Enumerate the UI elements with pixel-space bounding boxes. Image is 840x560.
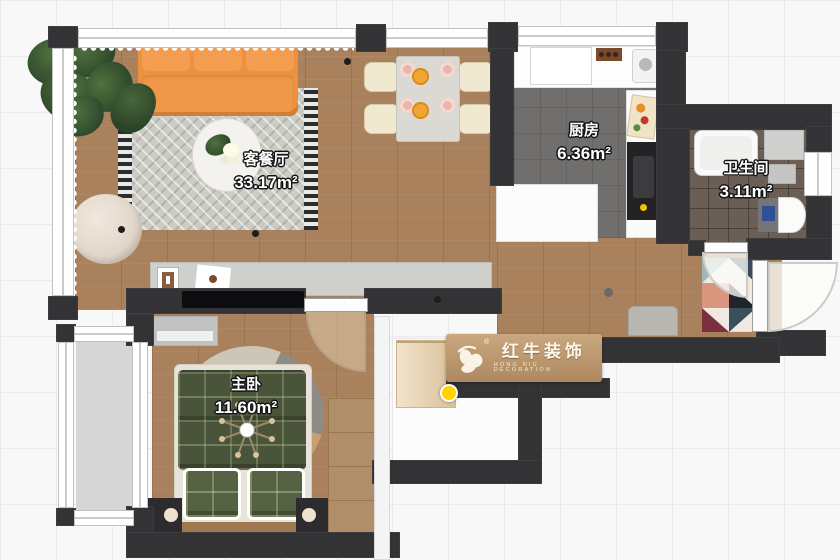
wall bbox=[364, 288, 502, 314]
wall bbox=[48, 26, 78, 48]
wall bbox=[490, 48, 514, 186]
room-label-kitchen: 厨房 6.36m² bbox=[557, 120, 611, 166]
wardrobe[interactable] bbox=[328, 398, 378, 536]
wall bbox=[746, 238, 832, 260]
window bbox=[804, 152, 832, 196]
watermark-logo: ® 红牛装饰 HONG NIU DECORATION bbox=[446, 334, 602, 382]
room-name: 主卧 bbox=[215, 374, 277, 396]
cooktop[interactable] bbox=[596, 48, 622, 61]
shoe-bench[interactable] bbox=[628, 306, 678, 336]
wall bbox=[356, 24, 386, 52]
balcony-window bbox=[58, 342, 74, 508]
entry-door[interactable] bbox=[752, 260, 768, 332]
dining-chair[interactable] bbox=[364, 62, 400, 92]
room-label-living: 客餐厅 33.17m² bbox=[234, 149, 297, 195]
curtain bbox=[74, 54, 80, 294]
room-area: 33.17m² bbox=[234, 171, 297, 196]
tv[interactable] bbox=[182, 291, 304, 308]
dining-set[interactable] bbox=[362, 54, 496, 142]
sofa-seat bbox=[142, 75, 294, 112]
spotlight-dot bbox=[118, 226, 125, 233]
partition bbox=[374, 316, 390, 560]
bedroom-door[interactable] bbox=[304, 298, 368, 312]
plate bbox=[440, 62, 455, 77]
cutting-board-decor bbox=[626, 94, 660, 139]
window bbox=[78, 28, 356, 48]
dining-chair[interactable] bbox=[458, 62, 494, 92]
kitchen-island-cabinet[interactable] bbox=[496, 184, 598, 242]
room-area: 3.11m² bbox=[720, 180, 773, 205]
fridge[interactable] bbox=[530, 47, 592, 85]
wall bbox=[656, 128, 690, 244]
spotlight-dot bbox=[604, 288, 613, 297]
bedroom-desk[interactable] bbox=[152, 316, 218, 346]
window bbox=[52, 48, 74, 296]
wall bbox=[806, 126, 832, 152]
window bbox=[386, 28, 488, 48]
room-label-bedroom: 主卧 11.60m² bbox=[215, 374, 277, 420]
curtain bbox=[80, 48, 354, 54]
table-lamp bbox=[164, 508, 178, 522]
room-label-bathroom: 卫生间 3.11m² bbox=[720, 158, 773, 204]
watermark-brand: 红牛装饰 bbox=[502, 343, 586, 360]
bathroom-vanity[interactable] bbox=[764, 130, 804, 160]
window bbox=[518, 26, 656, 46]
wall bbox=[56, 324, 76, 342]
room-name: 客餐厅 bbox=[234, 149, 297, 171]
dining-chair[interactable] bbox=[364, 104, 400, 134]
kitchen-sink[interactable] bbox=[632, 49, 658, 83]
room-area: 11.60m² bbox=[215, 396, 277, 421]
rug-border-band bbox=[304, 88, 318, 230]
balcony-window bbox=[74, 326, 134, 342]
wall bbox=[48, 296, 78, 320]
spotlight-dot bbox=[344, 58, 351, 65]
pendant-lamp bbox=[412, 102, 429, 119]
registered-mark: ® bbox=[484, 339, 489, 346]
bed-pillow bbox=[183, 468, 241, 520]
bull-logo-icon bbox=[454, 341, 488, 375]
plate bbox=[440, 98, 455, 113]
room-name: 卫生间 bbox=[720, 158, 773, 180]
table-lamp bbox=[302, 508, 316, 522]
balcony-floor[interactable] bbox=[76, 342, 134, 510]
wall bbox=[126, 532, 400, 558]
bean-bag-chair[interactable] bbox=[70, 194, 142, 264]
wall bbox=[56, 508, 76, 526]
spotlight-dot bbox=[252, 230, 259, 237]
spotlight-dot bbox=[434, 296, 441, 303]
pendant-lamp bbox=[412, 68, 429, 85]
wall bbox=[372, 460, 542, 484]
wall bbox=[656, 22, 688, 52]
balcony-window bbox=[132, 342, 148, 508]
floorplan-canvas: 客餐厅 33.17m² 厨房 6.36m² 卫生间 3.11m² 主卧 11.6… bbox=[0, 0, 840, 560]
watermark-subtitle: HONG NIU DECORATION bbox=[494, 363, 594, 374]
room-name: 厨房 bbox=[557, 120, 611, 142]
bathroom-door[interactable] bbox=[704, 242, 748, 253]
dining-chair[interactable] bbox=[458, 104, 494, 134]
room-area: 6.36m² bbox=[557, 142, 611, 167]
balcony-window bbox=[74, 510, 134, 526]
roam-point-marker[interactable] bbox=[440, 384, 458, 402]
